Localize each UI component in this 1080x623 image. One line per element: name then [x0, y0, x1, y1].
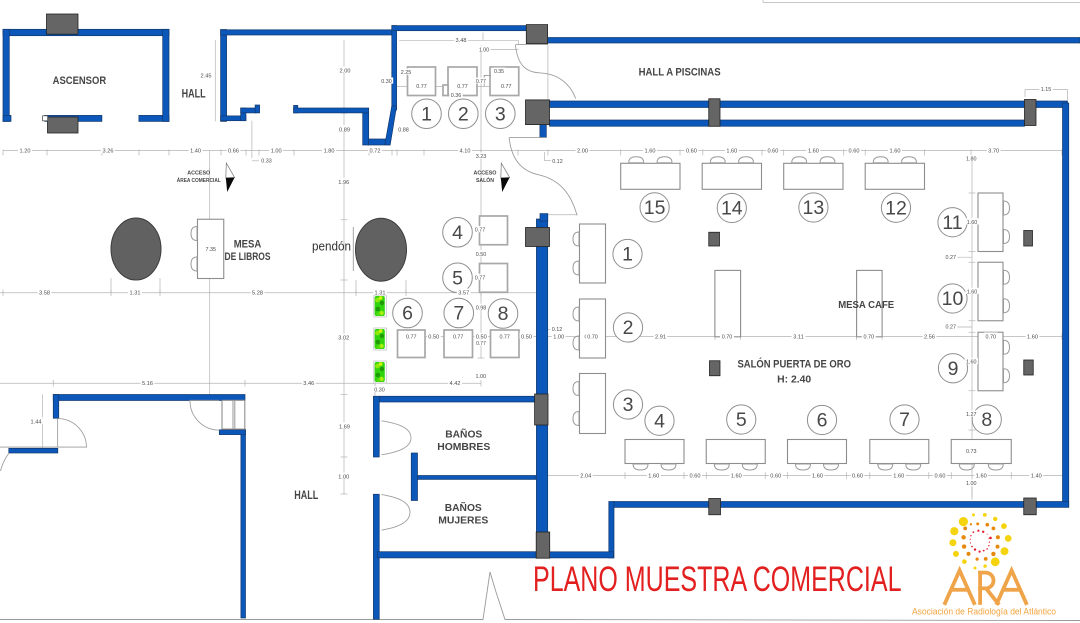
svg-text:SALÓN: SALÓN [476, 176, 494, 184]
svg-text:14: 14 [721, 198, 743, 220]
svg-text:2.04: 2.04 [580, 473, 591, 479]
svg-text:4.42: 4.42 [450, 381, 461, 387]
svg-text:1.60: 1.60 [726, 148, 737, 154]
svg-text:0.72: 0.72 [370, 148, 381, 154]
svg-text:0.70: 0.70 [864, 334, 875, 340]
svg-text:0.50: 0.50 [521, 334, 532, 340]
svg-text:1.00: 1.00 [966, 481, 977, 487]
svg-text:0.77: 0.77 [475, 275, 486, 281]
svg-text:1.15: 1.15 [1041, 87, 1052, 93]
svg-text:12: 12 [885, 197, 907, 219]
svg-text:0.70: 0.70 [587, 334, 598, 340]
svg-text:BAÑOS: BAÑOS [445, 428, 482, 441]
svg-text:1.60: 1.60 [890, 148, 901, 154]
svg-text:1.60: 1.60 [808, 148, 819, 154]
svg-text:1.31: 1.31 [375, 291, 386, 297]
svg-text:0.30: 0.30 [381, 79, 392, 85]
svg-text:4: 4 [654, 410, 665, 432]
svg-text:10: 10 [942, 288, 964, 310]
svg-text:3.58: 3.58 [39, 291, 50, 297]
svg-text:0.12: 0.12 [552, 327, 563, 333]
svg-text:5: 5 [452, 267, 463, 289]
svg-text:0.77: 0.77 [475, 228, 486, 234]
svg-text:0.60: 0.60 [770, 473, 781, 479]
svg-text:1.20: 1.20 [20, 148, 31, 154]
svg-text:3: 3 [495, 103, 506, 125]
svg-text:7.35: 7.35 [206, 247, 217, 253]
svg-text:BAÑOS: BAÑOS [445, 501, 482, 514]
svg-text:3.48: 3.48 [456, 38, 467, 44]
svg-text:0.60: 0.60 [686, 148, 697, 154]
svg-text:1.60: 1.60 [1027, 334, 1038, 340]
svg-text:1.60: 1.60 [966, 360, 977, 366]
svg-text:HALL A PISCINAS: HALL A PISCINAS [639, 67, 721, 79]
svg-text:0.50: 0.50 [476, 334, 487, 340]
svg-text:1.27: 1.27 [966, 412, 977, 418]
svg-text:MUJERES: MUJERES [438, 516, 488, 527]
svg-text:0.70: 0.70 [986, 334, 997, 340]
svg-text:0.33: 0.33 [261, 159, 272, 165]
svg-text:0.50: 0.50 [476, 252, 487, 258]
svg-text:1.00: 1.00 [476, 374, 487, 380]
svg-text:0.60: 0.60 [690, 473, 701, 479]
svg-text:0.60: 0.60 [767, 148, 778, 154]
svg-text:0.60: 0.60 [852, 473, 863, 479]
svg-text:2: 2 [623, 317, 634, 339]
svg-text:6: 6 [402, 303, 413, 325]
svg-text:1.00: 1.00 [271, 148, 282, 154]
svg-text:0.77: 0.77 [476, 79, 486, 85]
svg-text:3.57: 3.57 [458, 291, 469, 297]
svg-text:0.77: 0.77 [501, 84, 512, 90]
svg-text:1.60: 1.60 [976, 473, 987, 479]
svg-text:1.31: 1.31 [130, 291, 141, 297]
svg-text:MESA: MESA [234, 239, 262, 251]
svg-text:3.02: 3.02 [338, 336, 349, 342]
svg-text:1.60: 1.60 [812, 473, 823, 479]
svg-text:PLANO MUESTRA COMERCIAL: PLANO MUESTRA COMERCIAL [533, 560, 902, 599]
svg-text:1.44: 1.44 [31, 419, 42, 425]
svg-text:0.66: 0.66 [228, 148, 239, 154]
svg-text:0.98: 0.98 [476, 305, 487, 311]
svg-text:ÁREA COMERCIAL: ÁREA COMERCIAL [177, 177, 221, 184]
svg-text:0.27: 0.27 [946, 325, 957, 331]
svg-text:0.12: 0.12 [552, 159, 563, 165]
svg-text:1.60: 1.60 [967, 290, 978, 296]
svg-text:1.00: 1.00 [338, 475, 349, 481]
svg-text:1.40: 1.40 [190, 148, 201, 154]
svg-text:ACCESO: ACCESO [187, 171, 210, 177]
svg-text:3.23: 3.23 [476, 154, 487, 160]
svg-text:HOMBRES: HOMBRES [437, 442, 490, 453]
svg-text:HALL: HALL [294, 490, 318, 502]
svg-text:3.26: 3.26 [103, 148, 114, 154]
svg-text:2.56: 2.56 [924, 334, 935, 340]
svg-text:ASCENSOR: ASCENSOR [53, 75, 107, 87]
svg-text:0.70: 0.70 [722, 334, 733, 340]
svg-text:1.60: 1.60 [893, 473, 904, 479]
svg-text:5.28: 5.28 [252, 291, 263, 297]
svg-text:2.45: 2.45 [201, 73, 212, 79]
svg-text:Asociación de Radiología del A: Asociación de Radiología del Atlántico [912, 607, 1056, 617]
svg-text:2.00: 2.00 [340, 69, 351, 75]
svg-text:1.60: 1.60 [648, 473, 659, 479]
svg-text:0.60: 0.60 [935, 473, 946, 479]
svg-text:0.27: 0.27 [946, 255, 957, 261]
svg-text:0.35: 0.35 [494, 69, 504, 75]
svg-text:15: 15 [644, 197, 666, 219]
svg-text:7: 7 [453, 303, 464, 325]
svg-text:4.10: 4.10 [460, 148, 471, 154]
svg-text:0.88: 0.88 [398, 128, 409, 134]
svg-text:8: 8 [981, 409, 992, 431]
svg-text:7: 7 [899, 409, 910, 431]
svg-text:0.60: 0.60 [849, 148, 860, 154]
svg-text:3.46: 3.46 [303, 381, 314, 387]
svg-text:0.73: 0.73 [966, 449, 977, 455]
svg-text:5: 5 [736, 409, 747, 431]
svg-text:1: 1 [421, 103, 432, 125]
svg-text:3.70: 3.70 [988, 148, 999, 154]
svg-text:5.16: 5.16 [142, 381, 153, 387]
svg-text:MESA CAFE: MESA CAFE [838, 300, 894, 311]
svg-text:HALL: HALL [182, 89, 206, 101]
svg-text:4: 4 [452, 222, 463, 244]
svg-text:9: 9 [948, 358, 959, 380]
svg-text:13: 13 [803, 197, 825, 219]
svg-text:1.40: 1.40 [1031, 473, 1042, 479]
svg-text:1.69: 1.69 [339, 424, 350, 430]
svg-text:1.00: 1.00 [479, 47, 489, 53]
svg-text:1.80: 1.80 [324, 148, 335, 154]
svg-text:8: 8 [498, 303, 509, 325]
svg-text:1.96: 1.96 [338, 180, 349, 186]
svg-text:pendón: pendón [312, 240, 351, 254]
svg-text:0.50: 0.50 [428, 334, 439, 340]
svg-text:1.00: 1.00 [553, 334, 564, 340]
svg-text:1: 1 [622, 244, 633, 266]
svg-text:DE LIBROS: DE LIBROS [225, 251, 271, 263]
svg-text:2.91: 2.91 [655, 334, 666, 340]
svg-text:0.36: 0.36 [451, 93, 462, 99]
svg-text:3: 3 [623, 394, 634, 416]
svg-text:1.60: 1.60 [967, 220, 978, 226]
svg-text:0.77: 0.77 [476, 341, 486, 347]
svg-text:0.89: 0.89 [339, 127, 350, 133]
svg-text:0.77: 0.77 [416, 84, 427, 90]
svg-text:0.77: 0.77 [499, 334, 510, 340]
svg-text:3.11: 3.11 [793, 334, 803, 340]
svg-text:11: 11 [942, 212, 962, 234]
svg-text:0.77: 0.77 [457, 84, 468, 90]
svg-text:1.80: 1.80 [966, 157, 977, 163]
svg-text:1.60: 1.60 [731, 473, 742, 479]
svg-text:6: 6 [817, 410, 828, 432]
svg-text:ACCESO: ACCESO [474, 171, 497, 177]
svg-text:2.25: 2.25 [401, 70, 412, 76]
svg-text:0.30: 0.30 [374, 388, 385, 394]
svg-text:2.00: 2.00 [577, 148, 588, 154]
svg-text:SALÓN PUERTA DE ORO: SALÓN PUERTA DE ORO [737, 358, 851, 371]
svg-text:0.77: 0.77 [453, 334, 464, 340]
svg-text:2: 2 [458, 103, 469, 125]
svg-text:H: 2.40: H: 2.40 [777, 375, 811, 386]
svg-text:1.60: 1.60 [645, 148, 656, 154]
svg-text:0.77: 0.77 [406, 334, 417, 340]
